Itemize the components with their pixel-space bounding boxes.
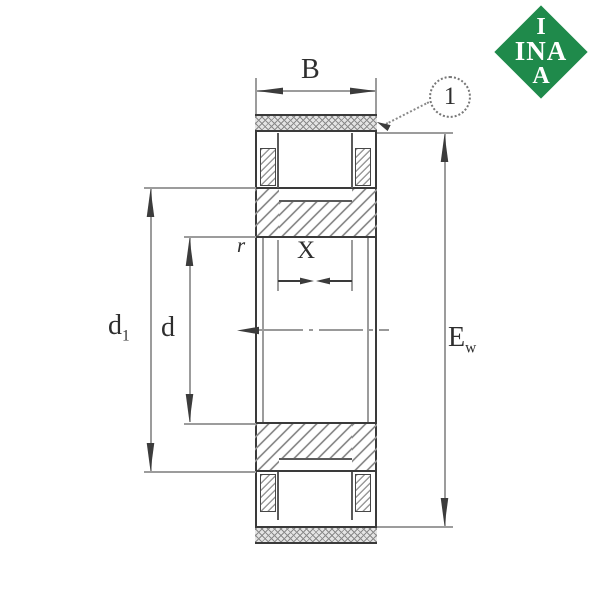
outer-cup-top bbox=[255, 114, 377, 132]
center-axis-line bbox=[259, 329, 389, 331]
cage-wall-bottom-left bbox=[277, 472, 279, 520]
inner-ring-rib-top-right bbox=[352, 189, 377, 236]
dim-arrow-B-left bbox=[257, 87, 283, 95]
dim-label-X: X bbox=[297, 238, 315, 263]
outer-cup-bottom bbox=[255, 526, 377, 544]
inner-ring-center-top bbox=[279, 202, 352, 236]
dim-label-r: r bbox=[237, 235, 245, 256]
dim-label-B: B bbox=[301, 56, 320, 84]
dim-line-Ew bbox=[444, 134, 446, 526]
ext-line-X-left bbox=[277, 240, 279, 291]
ext-line-X-right bbox=[351, 240, 353, 291]
dim-arrow-d1-bottom bbox=[146, 443, 155, 471]
roller-bottom-right bbox=[355, 474, 371, 512]
bearing-drawing: B d1 d Ew X r 1 I INA A bbox=[0, 0, 600, 600]
roller-top-right bbox=[355, 148, 371, 186]
ext-line-Ew-top bbox=[377, 132, 453, 134]
dim-arrow-X-left bbox=[300, 277, 314, 285]
inner-ring-rib-top-left bbox=[255, 189, 279, 236]
dim-label-d1-letter: d bbox=[108, 310, 122, 341]
dim-arrow-B-right bbox=[350, 87, 376, 95]
dim-label-d1: d1 bbox=[108, 312, 130, 344]
dim-label-Ew-sub: w bbox=[465, 340, 476, 357]
dim-line-X-right bbox=[326, 280, 352, 282]
callout-circle-1: 1 bbox=[429, 76, 471, 118]
cage-wall-top-left bbox=[277, 133, 279, 188]
inner-ring-rib-bottom-right bbox=[352, 424, 377, 470]
bore-line-top bbox=[255, 236, 377, 238]
raceway-recess-edge-bottom bbox=[279, 458, 352, 460]
dim-label-d1-sub: 1 bbox=[122, 328, 130, 345]
cage-wall-bottom-right bbox=[351, 472, 353, 520]
dim-label-Ew-letter: E bbox=[448, 322, 465, 353]
ext-line-Ew-bottom bbox=[377, 526, 453, 528]
dim-arrow-d-bottom bbox=[185, 394, 194, 422]
ina-logo-row-middle: INA bbox=[515, 39, 568, 65]
dim-arrow-Ew-bottom bbox=[440, 498, 449, 526]
inner-ring-center-bottom bbox=[279, 424, 352, 458]
dim-label-d: d bbox=[161, 314, 175, 342]
roller-bottom-left bbox=[260, 474, 276, 512]
dim-line-d1 bbox=[150, 189, 152, 471]
callout-number: 1 bbox=[444, 83, 457, 111]
ina-logo: I INA A bbox=[494, 5, 588, 99]
dim-arrow-d1-top bbox=[146, 189, 155, 217]
inner-ring-rib-bottom-left bbox=[255, 424, 279, 470]
ext-line-d-top bbox=[184, 236, 256, 238]
ext-line-d1-bottom bbox=[144, 471, 256, 473]
ext-line-B-right bbox=[375, 78, 377, 114]
ext-line-B-left bbox=[255, 78, 257, 114]
dim-label-Ew: Ew bbox=[448, 324, 476, 356]
dim-arrow-Ew-top bbox=[440, 134, 449, 162]
ina-logo-row-bottom: A bbox=[532, 65, 549, 88]
raceway-line-bottom bbox=[255, 470, 377, 472]
cage-wall-top-right bbox=[351, 133, 353, 188]
ext-line-d-bottom bbox=[184, 423, 256, 425]
dim-arrow-d-top bbox=[185, 238, 194, 266]
roller-top-left bbox=[260, 148, 276, 186]
axis-arrow bbox=[237, 326, 259, 335]
callout-leader-line bbox=[386, 101, 430, 125]
ext-line-d1-top bbox=[144, 187, 256, 189]
